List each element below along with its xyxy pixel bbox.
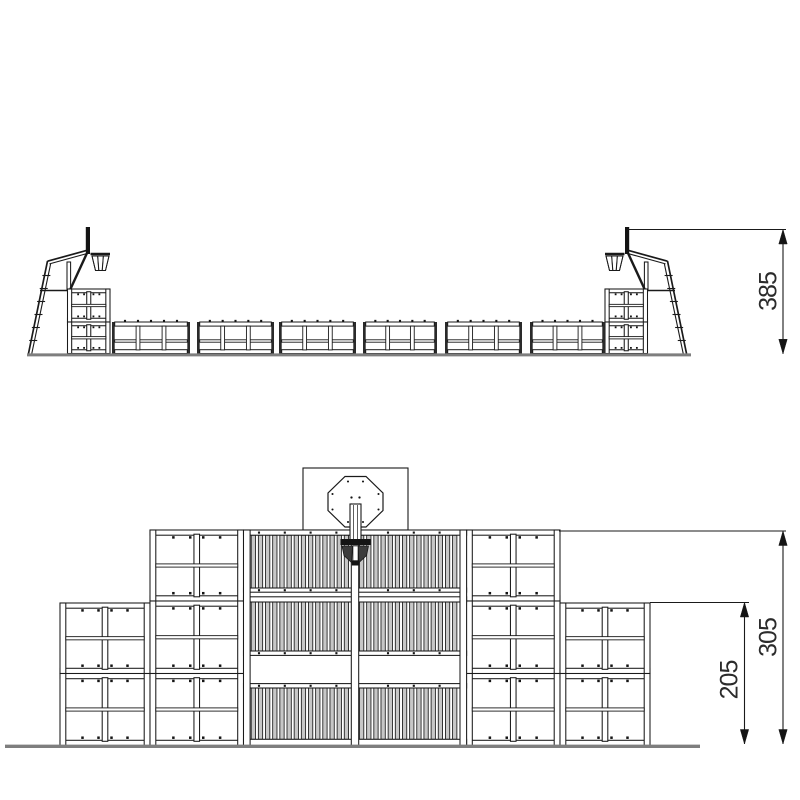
slat	[381, 602, 385, 651]
slat	[431, 602, 435, 651]
bolt-dot	[413, 685, 415, 687]
bolt-dot	[535, 736, 538, 739]
bolt-dot	[163, 320, 165, 322]
slat	[280, 535, 284, 588]
bolt-dot	[506, 736, 509, 739]
bolt-dot	[610, 680, 613, 683]
bolt-dot	[579, 320, 581, 322]
right-post	[106, 289, 110, 322]
dim-arrow-down	[740, 730, 748, 745]
bolt-dot	[597, 609, 600, 612]
slat	[273, 535, 277, 588]
slat	[258, 688, 262, 739]
divider-post	[162, 326, 166, 350]
slat	[308, 535, 312, 588]
end-post	[279, 322, 282, 354]
bolt-dot	[342, 320, 344, 322]
mount-dot	[358, 496, 360, 498]
slat	[438, 602, 442, 651]
slat	[374, 535, 378, 588]
right-post	[554, 530, 560, 601]
bolt-dot	[387, 532, 389, 534]
mid-crossbar	[66, 637, 144, 640]
left-post	[467, 601, 473, 674]
slat	[251, 535, 255, 588]
backboard-pole	[628, 254, 645, 291]
bolt-dot	[126, 680, 129, 683]
mid-crossbar	[156, 708, 238, 711]
bolt-dot	[489, 680, 492, 683]
top-rail	[115, 322, 188, 326]
top-rail	[282, 322, 354, 326]
top-rail	[366, 322, 435, 326]
top-rail	[533, 322, 603, 326]
bolt-dot	[83, 293, 85, 295]
slat	[453, 535, 457, 588]
slat	[388, 688, 392, 739]
dim-arrow-down	[779, 730, 787, 745]
bolt-dot	[413, 532, 415, 534]
bolt-dot	[77, 293, 79, 295]
end-post	[434, 322, 437, 354]
bottom-rail	[533, 350, 603, 354]
mid-rail	[282, 340, 354, 342]
slat	[453, 602, 457, 651]
bottom-rail	[282, 350, 354, 354]
slat	[445, 688, 449, 739]
slat	[445, 535, 449, 588]
slat	[374, 688, 378, 739]
slat	[395, 535, 399, 588]
mid-rail	[448, 340, 520, 342]
mid-left-block	[150, 530, 244, 746]
slat	[453, 688, 457, 739]
mid-crossbar	[156, 636, 238, 639]
bolt-dot	[126, 664, 129, 667]
bolt-dot	[97, 664, 100, 667]
left-post	[68, 322, 72, 354]
bolt-dot	[202, 607, 205, 610]
screw-dot	[377, 508, 379, 510]
bolt-dot	[439, 652, 441, 654]
bolt-dot	[202, 536, 205, 539]
bolt-dot	[482, 320, 484, 322]
bolt-dot	[258, 652, 260, 654]
bolt-dot	[470, 320, 472, 322]
bolt-dot	[519, 680, 522, 683]
arm-upper	[48, 250, 88, 261]
mount-bracket	[350, 504, 361, 540]
bolt-dot	[260, 320, 262, 322]
bolt-dot	[219, 607, 222, 610]
bolt-dot	[189, 592, 192, 595]
bolt-dot	[581, 664, 584, 667]
bolt-dot	[636, 315, 638, 317]
bolt-dot	[519, 607, 522, 610]
bolt-dot	[98, 293, 100, 295]
bolt-dot	[335, 652, 337, 654]
bolt-dot	[519, 592, 522, 595]
slat	[344, 602, 348, 651]
mid-rail	[366, 340, 435, 342]
mid-rail	[200, 340, 272, 342]
right-post	[643, 289, 647, 322]
top-rail	[200, 322, 272, 326]
bolt-dot	[77, 315, 79, 317]
end-post	[197, 322, 200, 354]
slat	[417, 688, 421, 739]
slat	[431, 535, 435, 588]
backboard-pole	[70, 254, 87, 291]
drawing-canvas: 385 305 205	[0, 0, 800, 800]
slat	[431, 688, 435, 739]
slat	[316, 535, 320, 588]
mid-crossbar	[472, 708, 554, 711]
bolt-dot	[615, 315, 617, 317]
slat	[395, 688, 399, 739]
slat	[337, 688, 341, 739]
bolt-dot	[219, 592, 222, 595]
bolt-dot	[387, 652, 389, 654]
bolt-dot	[310, 652, 312, 654]
end-post	[519, 322, 522, 354]
slat	[301, 688, 305, 739]
bolt-dot	[610, 736, 613, 739]
tower-panel-block-right	[605, 289, 648, 354]
bolt-dot	[535, 607, 538, 610]
bolt-dot	[110, 664, 113, 667]
bolt-dot	[137, 320, 139, 322]
bolt-dot	[97, 609, 100, 612]
mid-crossbar	[66, 708, 144, 711]
bolt-dot	[202, 680, 205, 683]
bolt-dot	[506, 664, 509, 667]
bolt-dot	[626, 680, 629, 683]
bolt-dot	[83, 347, 85, 349]
basketball-net	[92, 256, 109, 271]
bolt-dot	[636, 326, 638, 328]
bolt-dot	[621, 326, 623, 328]
dimension-385: 385	[627, 230, 787, 354]
bolt-dot	[258, 589, 260, 591]
bolt-dot	[457, 320, 459, 322]
bolt-dot	[566, 320, 568, 322]
bolt-dot	[615, 293, 617, 295]
bolt-dot	[202, 664, 205, 667]
bolt-dot	[172, 736, 175, 739]
grid-panel-2x2	[68, 289, 111, 322]
bolt-dot	[597, 736, 600, 739]
bolt-dot	[506, 536, 509, 539]
bolt-dot	[610, 664, 613, 667]
slat	[323, 688, 327, 739]
bolt-dot	[176, 320, 178, 322]
divider-post	[410, 326, 414, 350]
screw-dot	[362, 521, 364, 523]
screw-dot	[347, 480, 349, 482]
grid-panel-2x2	[60, 603, 150, 674]
mount-dot	[350, 496, 352, 498]
bolt-dot	[535, 680, 538, 683]
bolt-dot	[77, 326, 79, 328]
bolt-dot	[630, 293, 632, 295]
bolt-dot	[630, 347, 632, 349]
bolt-dot	[535, 664, 538, 667]
bolt-dot	[621, 315, 623, 317]
divider-post	[136, 326, 140, 350]
bolt-dot	[222, 320, 224, 322]
mid-crossbar	[566, 708, 644, 711]
bolt-dot	[615, 326, 617, 328]
slat	[417, 602, 421, 651]
slat	[266, 602, 270, 651]
bolt-dot	[284, 685, 286, 687]
bolt-dot	[97, 736, 100, 739]
bolt-dot	[258, 532, 260, 534]
left-post	[244, 530, 251, 746]
bolt-dot	[519, 536, 522, 539]
bolt-dot	[77, 347, 79, 349]
left-post	[605, 322, 609, 354]
bolt-dot	[81, 609, 84, 612]
right-post	[644, 603, 650, 674]
slat	[308, 688, 312, 739]
bolt-dot	[110, 680, 113, 683]
bottom-rail	[448, 350, 520, 354]
bolt-dot	[626, 736, 629, 739]
bolt-dot	[93, 347, 95, 349]
slat	[410, 602, 414, 651]
mid-crossbar	[72, 337, 106, 339]
bolt-dot	[110, 609, 113, 612]
left-post	[60, 674, 66, 746]
bolt-dot	[424, 320, 426, 322]
bolt-dot	[310, 589, 312, 591]
bolt-dot	[172, 592, 175, 595]
tower-panel-block-left	[68, 289, 111, 354]
slat	[381, 688, 385, 739]
grid-panel-2x2	[150, 674, 244, 746]
bolt-dot	[581, 609, 584, 612]
slat	[258, 535, 262, 588]
divider-post	[386, 326, 390, 350]
bolt-dot	[83, 326, 85, 328]
slat	[294, 688, 298, 739]
divider-post	[469, 326, 473, 350]
slat	[424, 535, 428, 588]
right-post	[644, 674, 650, 746]
grid-panel-2x2	[68, 322, 111, 354]
bolt-dot	[506, 592, 509, 595]
mid-crossbar	[566, 637, 644, 640]
left-post	[150, 530, 156, 601]
bolt-dot	[209, 320, 211, 322]
slat	[294, 602, 298, 651]
bolt-dot	[413, 652, 415, 654]
grid-panel-2x2	[60, 674, 150, 746]
bolt-dot	[374, 320, 376, 322]
grid-panel-2x2	[605, 289, 648, 322]
net-center-bracket	[353, 546, 358, 561]
slat	[294, 535, 298, 588]
bolt-dot	[489, 736, 492, 739]
bolt-dot	[630, 315, 632, 317]
mid-crossbar	[472, 564, 554, 567]
bolt-dot	[93, 326, 95, 328]
slat	[258, 602, 262, 651]
slat	[402, 535, 406, 588]
dim-arrow-up	[779, 531, 787, 546]
screw-dot	[362, 480, 364, 482]
bolt-dot	[219, 680, 222, 683]
grid-panel-2x2	[467, 530, 561, 601]
bolt-dot	[284, 652, 286, 654]
mid-rail	[533, 340, 603, 342]
slat	[323, 535, 327, 588]
bolt-dot	[597, 680, 600, 683]
bolt-dot	[234, 320, 236, 322]
bolt-dot	[93, 315, 95, 317]
bolt-dot	[597, 664, 600, 667]
front-elevation-geometry	[5, 468, 700, 746]
bolt-dot	[554, 320, 556, 322]
bolt-dot	[172, 680, 175, 683]
bolt-dot	[81, 680, 84, 683]
bolt-dot	[439, 532, 441, 534]
arm-upper	[628, 250, 668, 261]
bolt-dot	[626, 664, 629, 667]
bolt-dot	[150, 320, 152, 322]
slat	[337, 602, 341, 651]
bolt-dot	[439, 589, 441, 591]
bolt-dot	[506, 607, 509, 610]
slat	[438, 688, 442, 739]
divider-post	[246, 326, 250, 350]
bottom-rail	[366, 350, 435, 354]
bolt-dot	[219, 664, 222, 667]
bolt-dot	[506, 680, 509, 683]
bolt-dot	[615, 347, 617, 349]
slat	[273, 688, 277, 739]
slat	[402, 602, 406, 651]
slat	[367, 602, 371, 651]
fence-panel	[112, 320, 190, 354]
left-post	[560, 674, 566, 746]
ladder-leg-outer	[29, 261, 48, 354]
divider-post	[221, 326, 225, 350]
divider-post	[494, 326, 498, 350]
bolt-dot	[291, 320, 293, 322]
bolt-dot	[335, 532, 337, 534]
bolt-dot	[93, 293, 95, 295]
dim-arrow-down	[779, 339, 787, 354]
bolt-dot	[489, 664, 492, 667]
left-post	[150, 601, 156, 674]
bolt-dot	[172, 536, 175, 539]
slat	[308, 602, 312, 651]
bolt-dot	[411, 320, 413, 322]
bolt-dot	[387, 589, 389, 591]
end-post	[112, 322, 115, 354]
left-post	[605, 289, 609, 322]
grid-panel-2x2	[150, 601, 244, 674]
backboard-edge	[86, 227, 90, 254]
right-post	[106, 322, 110, 354]
bolt-dot	[399, 320, 401, 322]
bolt-dot	[489, 536, 492, 539]
bolt-dot	[541, 320, 543, 322]
bottom-rail	[115, 350, 188, 354]
bolt-dot	[189, 664, 192, 667]
backboard-edge	[625, 227, 629, 254]
bolt-dot	[98, 315, 100, 317]
screw-dot	[377, 493, 379, 495]
grid-panel-2x2	[150, 530, 244, 601]
bolt-dot	[126, 736, 129, 739]
slat	[251, 602, 255, 651]
slat	[360, 688, 364, 739]
slat	[251, 688, 255, 739]
bolt-dot	[489, 607, 492, 610]
left-post	[560, 603, 566, 674]
bolt-dot	[247, 320, 249, 322]
bolt-dot	[83, 315, 85, 317]
left-post	[150, 674, 156, 746]
bolt-dot	[189, 680, 192, 683]
bolt-dot	[98, 347, 100, 349]
bolt-dot	[581, 736, 584, 739]
bolt-dot	[81, 736, 84, 739]
bolt-dot	[189, 607, 192, 610]
screw-dot	[331, 508, 333, 510]
bolt-dot	[202, 736, 205, 739]
mid-right-block	[467, 530, 561, 746]
slat	[266, 688, 270, 739]
slat	[330, 535, 334, 588]
right-post	[238, 601, 244, 674]
screw-dot	[347, 521, 349, 523]
bolt-dot	[495, 320, 497, 322]
bolt-dot	[636, 347, 638, 349]
fence-panel	[530, 320, 605, 354]
outer-right-block	[560, 603, 650, 746]
right-post	[554, 601, 560, 674]
bolt-dot	[219, 536, 222, 539]
ladder-leg-outer	[668, 261, 687, 354]
bolt-dot	[535, 536, 538, 539]
bolt-dot	[335, 589, 337, 591]
bolt-dot	[413, 589, 415, 591]
slat	[388, 535, 392, 588]
grid-panel-2x2	[605, 322, 648, 354]
bolt-dot	[387, 320, 389, 322]
grid-panel-2x2	[560, 674, 650, 746]
slat	[301, 602, 305, 651]
slat	[410, 535, 414, 588]
bolt-dot	[626, 609, 629, 612]
top-rail	[448, 322, 520, 326]
bolt-dot	[126, 609, 129, 612]
bolt-dot	[189, 736, 192, 739]
end-post	[445, 322, 448, 354]
end-post	[187, 322, 190, 354]
bolt-dot	[110, 736, 113, 739]
left-post	[68, 289, 72, 322]
slat	[402, 688, 406, 739]
tower-post	[67, 262, 71, 291]
slat	[395, 602, 399, 651]
slat	[280, 688, 284, 739]
